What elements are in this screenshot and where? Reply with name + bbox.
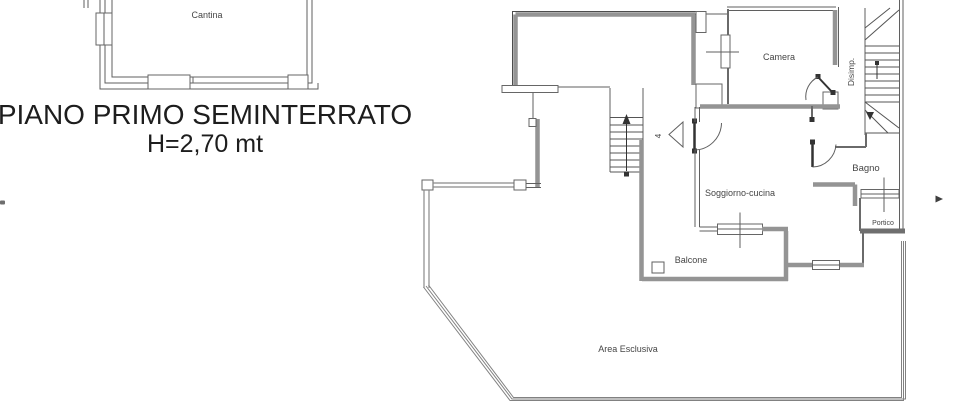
cantina-bottom-window-1 — [148, 75, 190, 89]
bagno-walls — [810, 106, 867, 206]
plan-title: PIANO PRIMO SEMINTERRATO — [0, 99, 412, 130]
portico-label: Portico — [872, 220, 894, 227]
cantina-unit: Cantina — [84, 0, 318, 89]
balcone-pillar — [652, 262, 664, 273]
floor-plan-drawing: Cantina PIANO PRIMO SEMINTERRATO H=2,70 … — [0, 0, 960, 415]
upper-room-sill — [502, 86, 558, 93]
left-edge-artifact — [0, 201, 5, 205]
cantina-label: Cantina — [191, 10, 222, 20]
bagno-door-swing — [810, 140, 836, 168]
entry-door-number: 4 — [654, 133, 663, 138]
bagno-label: Bagno — [852, 163, 879, 174]
area-esclusiva-label: Area Esclusiva — [598, 344, 658, 354]
plan-height: H=2,70 mt — [147, 130, 263, 158]
balcone-label: Balcone — [675, 255, 708, 265]
cantina-bottom-window-2 — [193, 77, 290, 83]
entry-door-4: 4 — [654, 119, 722, 154]
floor-plan-page: Cantina PIANO PRIMO SEMINTERRATO H=2,70 … — [0, 0, 960, 415]
camera-label: Camera — [763, 52, 795, 62]
cantina-bottom-window-3 — [288, 75, 308, 89]
balcone-walls — [642, 231, 788, 281]
interior-staircase — [610, 88, 643, 177]
title-block: PIANO PRIMO SEMINTERRATO H=2,70 mt — [0, 99, 412, 158]
upper-room-window — [696, 12, 706, 33]
right-edge-artifact — [936, 196, 944, 203]
upper-room-walls — [502, 12, 727, 188]
disimpegno-label: Disimp. — [846, 58, 856, 86]
soggiorno-label: Soggiorno-cucina — [705, 188, 775, 198]
terrace-railing — [422, 180, 526, 288]
entry-direction-marker — [669, 122, 683, 147]
